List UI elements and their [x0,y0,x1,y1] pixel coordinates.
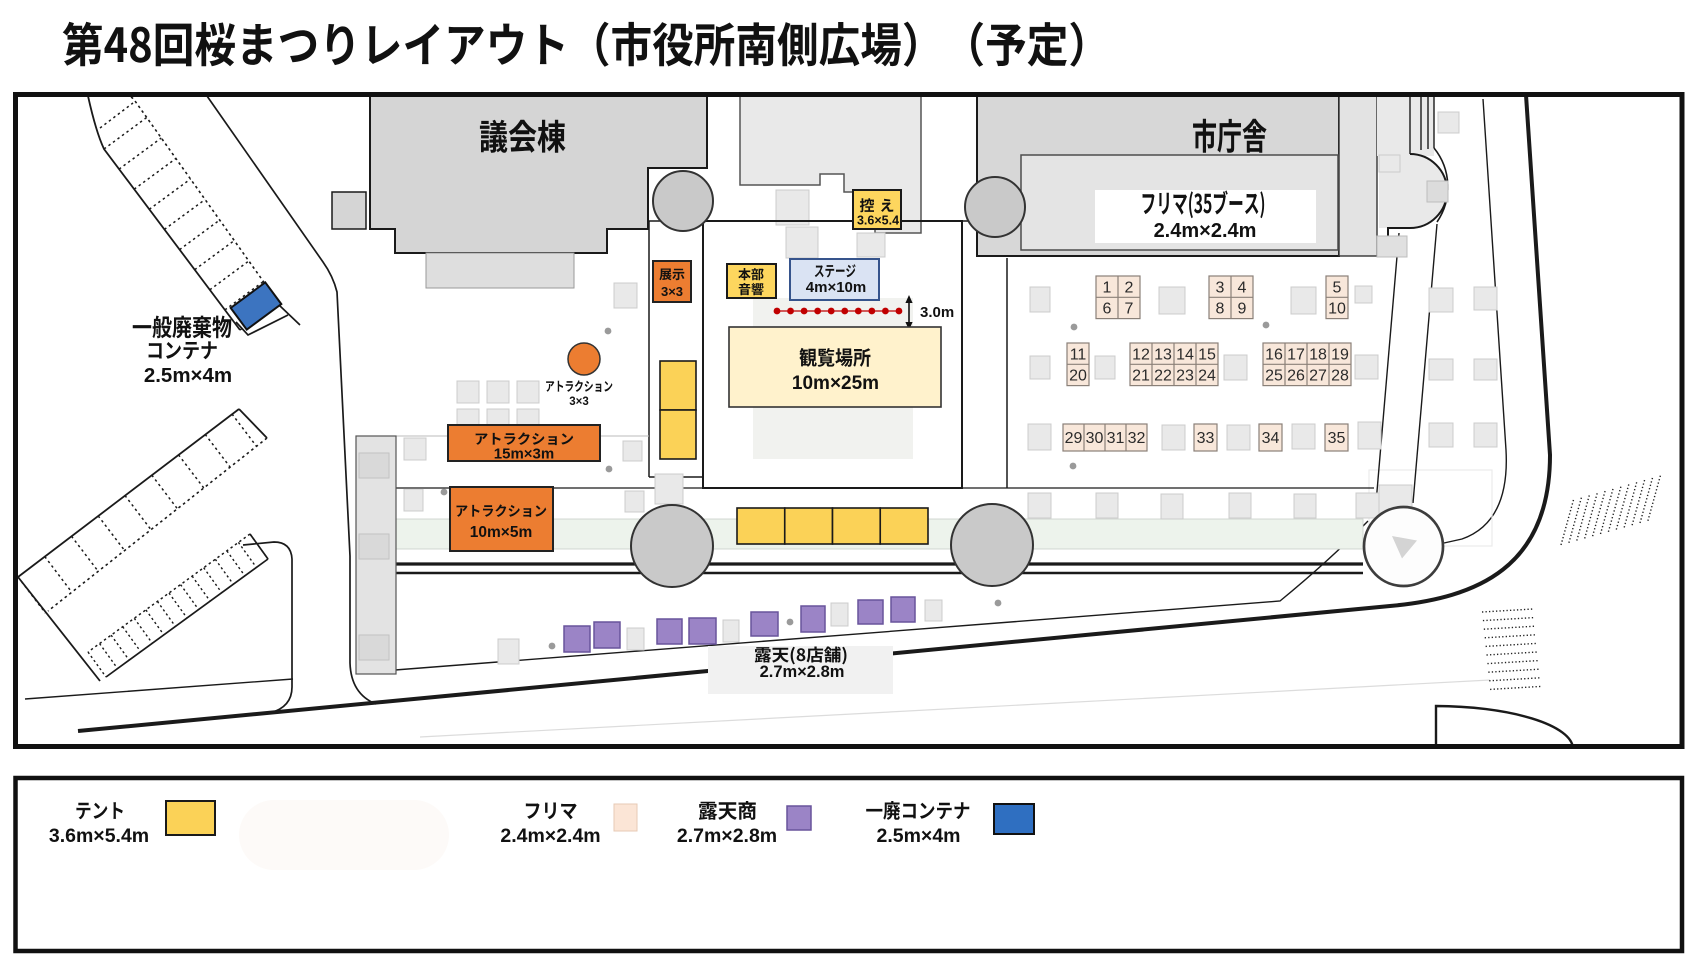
svg-text:8: 8 [1216,301,1225,318]
svg-text:5: 5 [1333,279,1342,296]
svg-text:17: 17 [1287,346,1305,363]
svg-text:24: 24 [1198,368,1216,385]
svg-text:10m×25m: 10m×25m [792,373,879,394]
svg-text:25: 25 [1265,368,1283,385]
svg-text:7: 7 [1125,301,1134,318]
svg-text:2.4m×2.4m: 2.4m×2.4m [1154,220,1257,242]
svg-text:20: 20 [1069,368,1087,385]
svg-text:30: 30 [1086,430,1104,447]
svg-text:34: 34 [1262,430,1280,447]
svg-text:2.4m×2.4m: 2.4m×2.4m [500,825,600,847]
svg-text:12: 12 [1132,346,1150,363]
svg-text:10: 10 [1328,301,1346,318]
svg-text:35: 35 [1328,430,1346,447]
svg-text:10m×5m: 10m×5m [470,524,532,541]
svg-text:1: 1 [1103,279,1112,296]
svg-text:33: 33 [1197,430,1215,447]
svg-text:27: 27 [1309,368,1327,385]
svg-text:3×3: 3×3 [569,396,589,408]
svg-text:29: 29 [1065,430,1083,447]
svg-text:6: 6 [1103,301,1112,318]
svg-text:23: 23 [1176,368,1194,385]
svg-text:2.7m×2.8m: 2.7m×2.8m [760,663,845,681]
svg-text:13: 13 [1154,346,1172,363]
svg-text:4: 4 [1238,279,1247,296]
svg-text:18: 18 [1309,346,1327,363]
svg-text:32: 32 [1128,430,1146,447]
svg-text:19: 19 [1331,346,1349,363]
svg-text:15m×3m: 15m×3m [494,446,554,463]
svg-text:3.0m: 3.0m [920,304,954,321]
svg-text:21: 21 [1132,368,1150,385]
svg-text:22: 22 [1154,368,1172,385]
svg-text:3.6×5.4: 3.6×5.4 [857,214,899,228]
svg-text:4m×10m: 4m×10m [806,279,866,296]
svg-text:11: 11 [1070,346,1087,363]
svg-text:14: 14 [1176,346,1194,363]
svg-text:28: 28 [1331,368,1349,385]
svg-text:3×3: 3×3 [661,284,683,299]
svg-text:3: 3 [1216,279,1225,296]
svg-text:2.7m×2.8m: 2.7m×2.8m [677,825,777,847]
svg-text:2.5m×4m: 2.5m×4m [876,825,960,847]
svg-text:9: 9 [1238,301,1247,318]
svg-text:15: 15 [1198,346,1216,363]
svg-text:31: 31 [1107,430,1125,447]
svg-text:3.6m×5.4m: 3.6m×5.4m [49,825,149,847]
svg-text:2.5m×4m: 2.5m×4m [144,364,232,387]
svg-text:2: 2 [1125,279,1134,296]
svg-text:16: 16 [1265,346,1283,363]
svg-text:26: 26 [1287,368,1305,385]
